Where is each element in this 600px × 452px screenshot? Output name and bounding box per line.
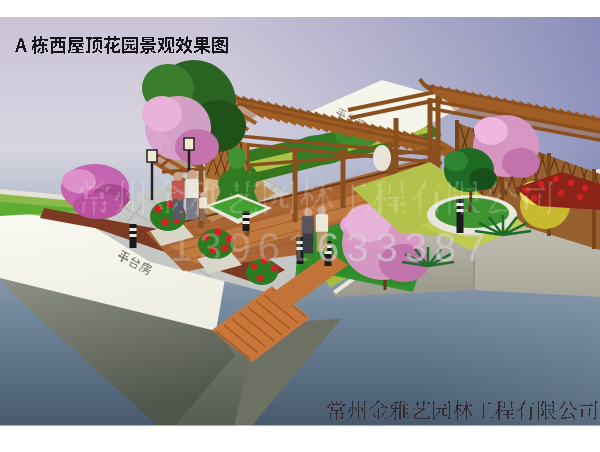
svg-text:633387: 633387 bbox=[317, 226, 492, 270]
svg-text:13961: 13961 bbox=[170, 226, 316, 270]
